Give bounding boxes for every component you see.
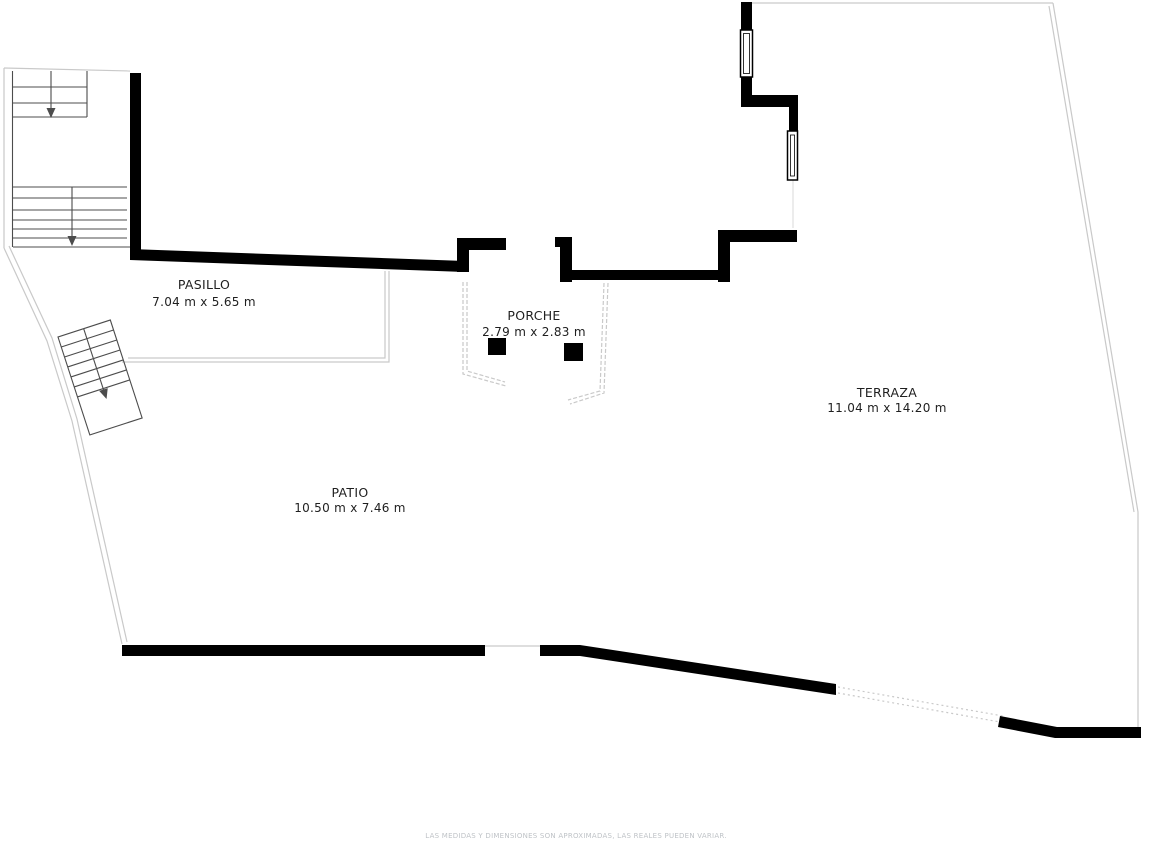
porch-pillar — [564, 343, 583, 361]
floorplan-svg: PASILLO 7.04 m x 5.65 m PORCHE 2.79 m x … — [0, 0, 1152, 842]
wall-segment — [457, 238, 469, 272]
boundary-line — [9, 246, 127, 642]
room-dims-patio: 10.50 m x 7.46 m — [294, 501, 406, 515]
wall-segment — [130, 249, 465, 272]
wall-segment — [540, 645, 836, 695]
boundary-line — [4, 68, 130, 71]
window-symbol-right — [788, 131, 798, 180]
window-symbol-top — [741, 30, 753, 77]
staircase-lower-flight — [13, 71, 131, 247]
boundary-line — [4, 248, 122, 644]
floorplan-canvas: PASILLO 7.04 m x 5.65 m PORCHE 2.79 m x … — [0, 0, 1152, 842]
boundary-line — [1053, 3, 1138, 727]
window-inner — [744, 34, 750, 74]
room-label-pasillo: PASILLO — [178, 277, 230, 292]
stair-arrow-icon — [68, 236, 77, 246]
wall-segment — [741, 2, 752, 30]
room-label-porche: PORCHE — [507, 308, 560, 323]
wall-segment — [998, 716, 1141, 738]
wall-segment — [130, 73, 141, 256]
staircases — [13, 71, 143, 435]
walls — [122, 2, 1141, 738]
stair-walkline — [84, 329, 104, 392]
pasillo-outline — [122, 271, 389, 362]
wall-segment — [122, 645, 485, 656]
porch-outline — [568, 283, 604, 400]
wall-segment — [563, 270, 728, 280]
room-label-terraza: TERRAZA — [856, 385, 917, 400]
wall-segment — [789, 107, 798, 133]
room-label-patio: PATIO — [332, 485, 369, 500]
stair-arrow-icon — [99, 388, 111, 400]
wall-segment — [718, 230, 797, 242]
room-dims-porche: 2.79 m x 2.83 m — [482, 325, 586, 339]
disclaimer-text: LAS MEDIDAS Y DIMENSIONES SON APROXIMADA… — [425, 832, 726, 840]
boundary-line — [1049, 6, 1134, 512]
porch-pillar — [488, 338, 506, 355]
boundary-dotted-line — [838, 693, 1000, 722]
wall-segment — [741, 77, 752, 107]
site-boundary-lines — [4, 3, 1138, 727]
porch-pillars — [488, 338, 583, 361]
room-labels: PASILLO 7.04 m x 5.65 m PORCHE 2.79 m x … — [152, 277, 947, 515]
pasillo-outline — [128, 271, 385, 358]
boundary-dotted-line — [838, 687, 1003, 716]
window-inner — [791, 135, 795, 176]
room-dims-terraza: 11.04 m x 14.20 m — [827, 401, 947, 415]
room-dims-pasillo: 7.04 m x 5.65 m — [152, 295, 256, 309]
